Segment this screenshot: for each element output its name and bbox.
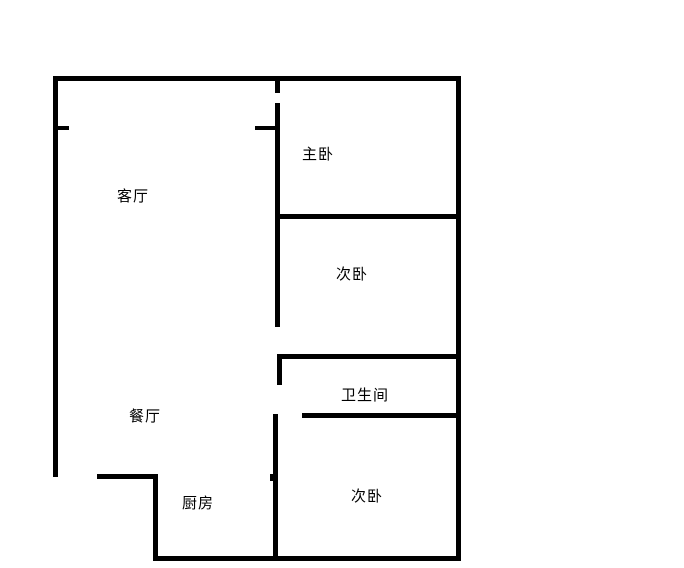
wall-kitchen-left [153,474,158,561]
wall-kitchen-top [97,474,157,479]
room-label-kitchen: 厨房 [182,496,214,512]
room-label-living-room: 客厅 [117,189,149,205]
wall-bathroom-top [277,354,461,359]
wall-left-exterior [53,76,58,477]
door-tick-right [255,126,277,130]
wall-bathroom-bottom [302,413,461,418]
room-label-master-bedroom: 主卧 [302,147,334,163]
wall-right-exterior [456,76,461,561]
room-label-second-bedroom-lower: 次卧 [351,489,383,505]
room-label-bathroom: 卫生间 [341,388,389,404]
wall-central-lower [273,414,278,561]
wall-central-top-stub [275,76,280,93]
wall-central-notch [270,474,274,481]
room-label-second-bedroom-upper: 次卧 [336,267,368,283]
floor-plan-canvas: 客厅 主卧 次卧 卫生间 餐厅 厨房 次卧 [0,0,684,568]
wall-top-exterior [53,76,461,81]
wall-bathroom-left-stub [277,354,282,385]
wall-central-main [275,103,280,327]
wall-master-second-divider [275,214,461,219]
wall-bottom-exterior [153,556,461,561]
door-tick-left [53,126,69,130]
room-label-dining-room: 餐厅 [129,409,161,425]
